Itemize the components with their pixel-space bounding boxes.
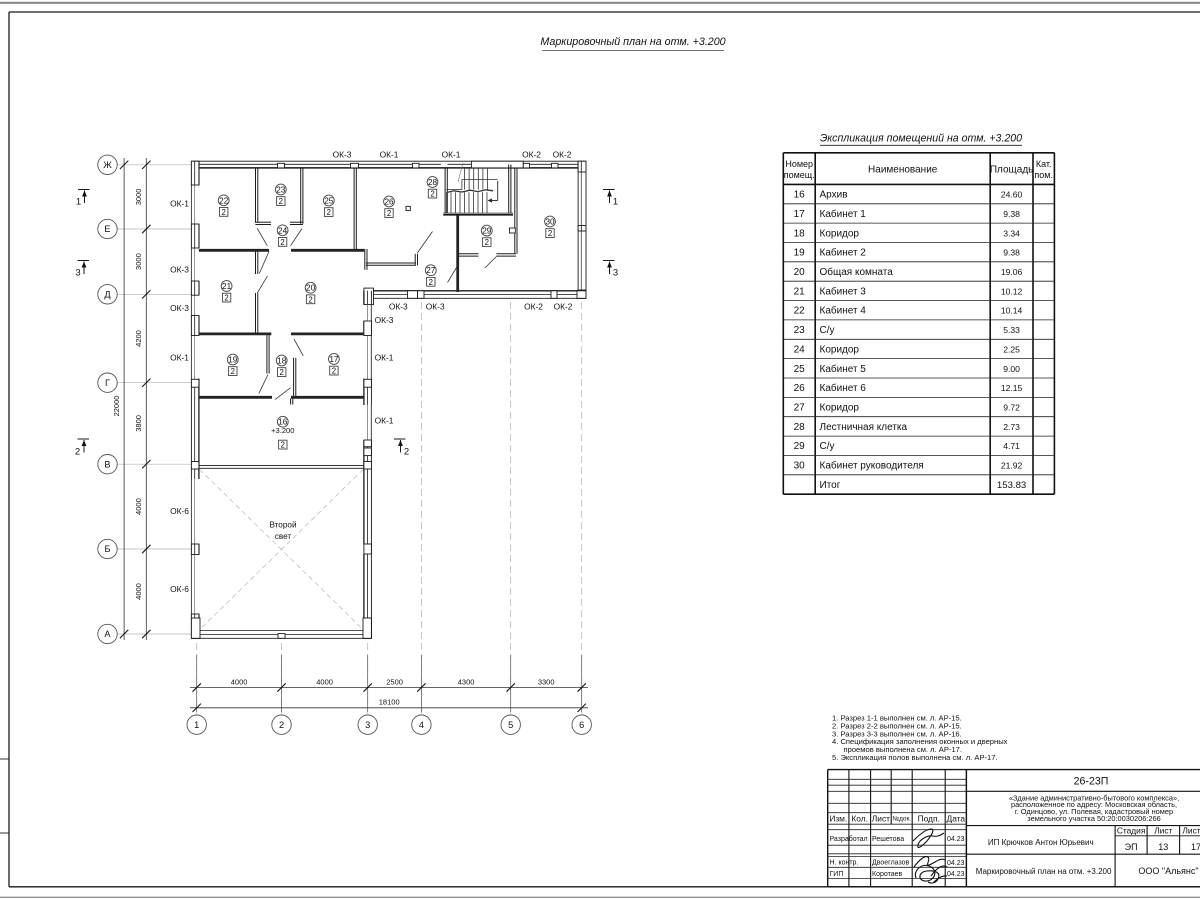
svg-text:Д: Д xyxy=(104,290,111,300)
svg-text:Лист: Лист xyxy=(872,813,890,823)
svg-text:ОК-1: ОК-1 xyxy=(375,416,394,426)
svg-text:9.00: 9.00 xyxy=(1003,364,1020,374)
svg-text:22000: 22000 xyxy=(112,396,121,417)
svg-text:ОК-3: ОК-3 xyxy=(170,303,189,313)
svg-text:ОК-3: ОК-3 xyxy=(389,301,408,311)
svg-text:1: 1 xyxy=(613,197,618,208)
svg-text:26: 26 xyxy=(384,198,394,207)
svg-text:Наименование: Наименование xyxy=(868,165,938,176)
svg-text:19: 19 xyxy=(228,356,238,365)
svg-text:19.06: 19.06 xyxy=(1001,267,1023,277)
svg-text:04.23: 04.23 xyxy=(947,836,965,843)
svg-text:29: 29 xyxy=(482,227,492,236)
svg-text:2.25: 2.25 xyxy=(1003,344,1020,354)
svg-text:2: 2 xyxy=(308,295,312,304)
svg-text:+3.200: +3.200 xyxy=(271,426,294,435)
svg-text:3800: 3800 xyxy=(134,415,143,432)
svg-text:4000: 4000 xyxy=(134,583,143,600)
svg-text:2: 2 xyxy=(404,447,409,458)
svg-text:Маркировочный план на отм. +3.: Маркировочный план на отм. +3.200 xyxy=(540,36,725,48)
svg-text:22: 22 xyxy=(794,306,806,317)
svg-text:Двоеглазов: Двоеглазов xyxy=(872,860,909,867)
svg-text:ОК-3: ОК-3 xyxy=(333,149,352,159)
svg-text:9.38: 9.38 xyxy=(1003,248,1020,258)
svg-text:2: 2 xyxy=(231,367,235,376)
svg-text:4.71: 4.71 xyxy=(1003,441,1020,451)
svg-text:ОК-2: ОК-2 xyxy=(553,149,572,159)
svg-text:21: 21 xyxy=(222,282,232,291)
svg-text:18: 18 xyxy=(277,357,287,366)
svg-text:2: 2 xyxy=(279,197,283,206)
svg-text:24: 24 xyxy=(794,344,806,355)
svg-text:17: 17 xyxy=(1191,842,1200,852)
svg-text:С/у: С/у xyxy=(820,325,835,336)
svg-text:5.33: 5.33 xyxy=(1003,325,1020,335)
svg-text:2: 2 xyxy=(430,190,434,199)
svg-text:2.73: 2.73 xyxy=(1003,422,1020,432)
svg-text:9.38: 9.38 xyxy=(1003,209,1020,219)
svg-text:Подп.: Подп. xyxy=(918,813,940,823)
svg-text:23: 23 xyxy=(276,186,286,195)
svg-text:5: 5 xyxy=(508,720,513,730)
svg-text:4: 4 xyxy=(419,720,424,730)
svg-text:Листов: Листов xyxy=(1182,825,1200,835)
svg-text:27: 27 xyxy=(426,266,436,275)
svg-text:Итог: Итог xyxy=(820,480,841,491)
svg-text:2: 2 xyxy=(327,208,331,217)
svg-text:3000: 3000 xyxy=(134,253,143,270)
svg-text:ОК-3: ОК-3 xyxy=(170,265,189,275)
svg-text:25: 25 xyxy=(324,197,334,206)
svg-text:2: 2 xyxy=(222,208,226,217)
svg-text:3300: 3300 xyxy=(538,677,555,686)
svg-text:помещ.: помещ. xyxy=(784,170,815,180)
svg-text:Кабинет 4: Кабинет 4 xyxy=(820,305,867,317)
svg-text:ОК-6: ОК-6 xyxy=(170,584,189,594)
svg-text:Кабинет 6: Кабинет 6 xyxy=(820,382,867,394)
svg-text:Е: Е xyxy=(104,224,110,234)
svg-text:Коротаев: Коротаев xyxy=(872,871,903,878)
svg-text:24.60: 24.60 xyxy=(1001,190,1023,200)
svg-text:2: 2 xyxy=(387,209,391,218)
svg-text:4200: 4200 xyxy=(134,330,143,347)
svg-text:А: А xyxy=(104,629,111,639)
svg-text:2: 2 xyxy=(75,447,80,458)
svg-text:3: 3 xyxy=(613,268,618,279)
svg-text:ОК-6: ОК-6 xyxy=(170,506,189,516)
svg-text:2: 2 xyxy=(224,294,228,303)
svg-text:2: 2 xyxy=(280,368,284,377)
svg-text:Экспликация помещений на отм.: Экспликация помещений на отм. +3.200 xyxy=(820,133,1022,145)
svg-text:21: 21 xyxy=(794,286,806,297)
svg-text:земельного участка 50:20:00302: земельного участка 50:20:0030206:266 xyxy=(1027,814,1160,823)
svg-text:4300: 4300 xyxy=(458,677,475,686)
svg-text:Кабинет 1: Кабинет 1 xyxy=(820,208,867,220)
svg-text:26: 26 xyxy=(794,383,806,394)
svg-text:Площадь: Площадь xyxy=(990,165,1034,176)
svg-text:Б: Б xyxy=(104,544,110,554)
svg-text:17: 17 xyxy=(329,355,339,364)
svg-text:Н. контр.: Н. контр. xyxy=(830,860,859,867)
svg-text:2500: 2500 xyxy=(386,677,403,686)
svg-text:3: 3 xyxy=(365,720,370,730)
svg-text:20: 20 xyxy=(306,284,316,293)
svg-text:4000: 4000 xyxy=(316,677,333,686)
svg-text:ОК-1: ОК-1 xyxy=(380,149,399,159)
svg-text:Стадия: Стадия xyxy=(1117,825,1146,835)
svg-text:Кабинет руководителя: Кабинет руководителя xyxy=(820,460,924,472)
svg-text:Номер: Номер xyxy=(785,159,813,169)
svg-text:27: 27 xyxy=(794,403,806,414)
svg-text:ИП Крючков Антон Юрьевич: ИП Крючков Антон Юрьевич xyxy=(988,838,1094,847)
svg-text:20: 20 xyxy=(794,267,806,278)
svg-text:10.12: 10.12 xyxy=(1001,286,1023,296)
svg-text:16: 16 xyxy=(794,190,806,201)
svg-text:Коридор: Коридор xyxy=(820,344,860,355)
svg-text:13: 13 xyxy=(1158,842,1168,852)
svg-text:Кол.: Кол. xyxy=(851,813,868,823)
svg-text:30: 30 xyxy=(794,461,806,472)
svg-text:12.15: 12.15 xyxy=(1001,383,1023,393)
svg-text:Общая комната: Общая комната xyxy=(820,266,894,278)
svg-text:ОК-3: ОК-3 xyxy=(426,301,445,311)
svg-text:17: 17 xyxy=(794,209,806,220)
svg-text:Г: Г xyxy=(105,378,110,388)
svg-text:153.83: 153.83 xyxy=(997,480,1026,491)
svg-text:ОК-1: ОК-1 xyxy=(375,352,394,362)
svg-text:Разработал: Разработал xyxy=(830,835,868,843)
svg-text:Архив: Архив xyxy=(820,190,848,201)
svg-text:10.14: 10.14 xyxy=(1001,306,1023,316)
svg-text:Второй: Второй xyxy=(269,521,296,530)
svg-text:26-23П: 26-23П xyxy=(1074,776,1109,788)
svg-text:Кабинет 5: Кабинет 5 xyxy=(820,363,867,375)
svg-text:1: 1 xyxy=(76,197,81,208)
svg-text:24: 24 xyxy=(278,226,288,235)
svg-text:Лестничная клетка: Лестничная клетка xyxy=(820,422,908,433)
svg-text:2: 2 xyxy=(281,441,285,450)
svg-text:28: 28 xyxy=(428,178,438,187)
svg-text:2: 2 xyxy=(280,238,284,247)
svg-text:3.34: 3.34 xyxy=(1003,228,1020,238)
svg-text:ОК-1: ОК-1 xyxy=(442,149,461,159)
svg-text:Коридор: Коридор xyxy=(820,228,860,239)
svg-text:1: 1 xyxy=(194,720,199,730)
svg-text:С/у: С/у xyxy=(820,441,835,452)
svg-text:4000: 4000 xyxy=(134,498,143,515)
svg-text:пом.: пом. xyxy=(1034,170,1053,180)
svg-text:2: 2 xyxy=(279,720,284,730)
svg-text:18100: 18100 xyxy=(379,698,400,707)
svg-text:ОК-2: ОК-2 xyxy=(554,301,573,311)
svg-text:Лист: Лист xyxy=(1154,825,1172,835)
svg-text:Дата: Дата xyxy=(947,813,966,823)
svg-text:30: 30 xyxy=(545,218,555,227)
svg-text:3: 3 xyxy=(75,268,80,279)
svg-text:Ж: Ж xyxy=(103,160,112,170)
svg-text:3000: 3000 xyxy=(134,189,143,206)
svg-text:В: В xyxy=(104,459,110,469)
svg-text:2: 2 xyxy=(429,278,433,287)
svg-text:№док.: №док. xyxy=(892,816,911,823)
svg-text:Изм.: Изм. xyxy=(829,813,847,823)
svg-text:23: 23 xyxy=(794,325,806,336)
svg-text:19: 19 xyxy=(794,248,806,259)
svg-text:22: 22 xyxy=(219,196,229,205)
svg-text:5. Экспликация полов выполнена: 5. Экспликация полов выполнена см. л. АР… xyxy=(832,753,998,762)
svg-text:2: 2 xyxy=(485,238,489,247)
svg-text:6: 6 xyxy=(579,720,584,730)
svg-text:Коридор: Коридор xyxy=(820,403,860,414)
svg-text:Маркировочный план на отм. +3.: Маркировочный план на отм. +3.200 xyxy=(976,867,1112,876)
svg-text:18: 18 xyxy=(794,228,806,239)
svg-text:2: 2 xyxy=(332,367,336,376)
svg-text:29: 29 xyxy=(794,441,806,452)
svg-text:9.72: 9.72 xyxy=(1003,403,1020,413)
svg-text:ОК-2: ОК-2 xyxy=(522,149,541,159)
svg-text:Решетова: Решетова xyxy=(872,836,904,843)
svg-text:4000: 4000 xyxy=(231,677,248,686)
svg-text:ОК-1: ОК-1 xyxy=(170,352,189,362)
svg-text:28: 28 xyxy=(794,422,806,433)
svg-text:25: 25 xyxy=(794,364,806,375)
svg-text:ЭП: ЭП xyxy=(1125,842,1138,852)
svg-text:2: 2 xyxy=(548,229,552,238)
svg-text:04.23: 04.23 xyxy=(947,871,965,878)
svg-text:ООО "Альянс": ООО "Альянс" xyxy=(1138,866,1198,876)
svg-text:свет: свет xyxy=(275,532,292,541)
svg-text:21.92: 21.92 xyxy=(1001,461,1023,471)
svg-text:Кат.: Кат. xyxy=(1036,159,1052,169)
svg-text:ГИП: ГИП xyxy=(830,871,844,878)
svg-text:ОК-1: ОК-1 xyxy=(170,199,189,209)
svg-text:04.23: 04.23 xyxy=(947,860,965,867)
svg-text:ОК-2: ОК-2 xyxy=(524,301,543,311)
svg-text:ОК-3: ОК-3 xyxy=(375,315,394,325)
svg-text:Кабинет 2: Кабинет 2 xyxy=(820,247,867,259)
svg-text:Кабинет 3: Кабинет 3 xyxy=(820,285,867,297)
